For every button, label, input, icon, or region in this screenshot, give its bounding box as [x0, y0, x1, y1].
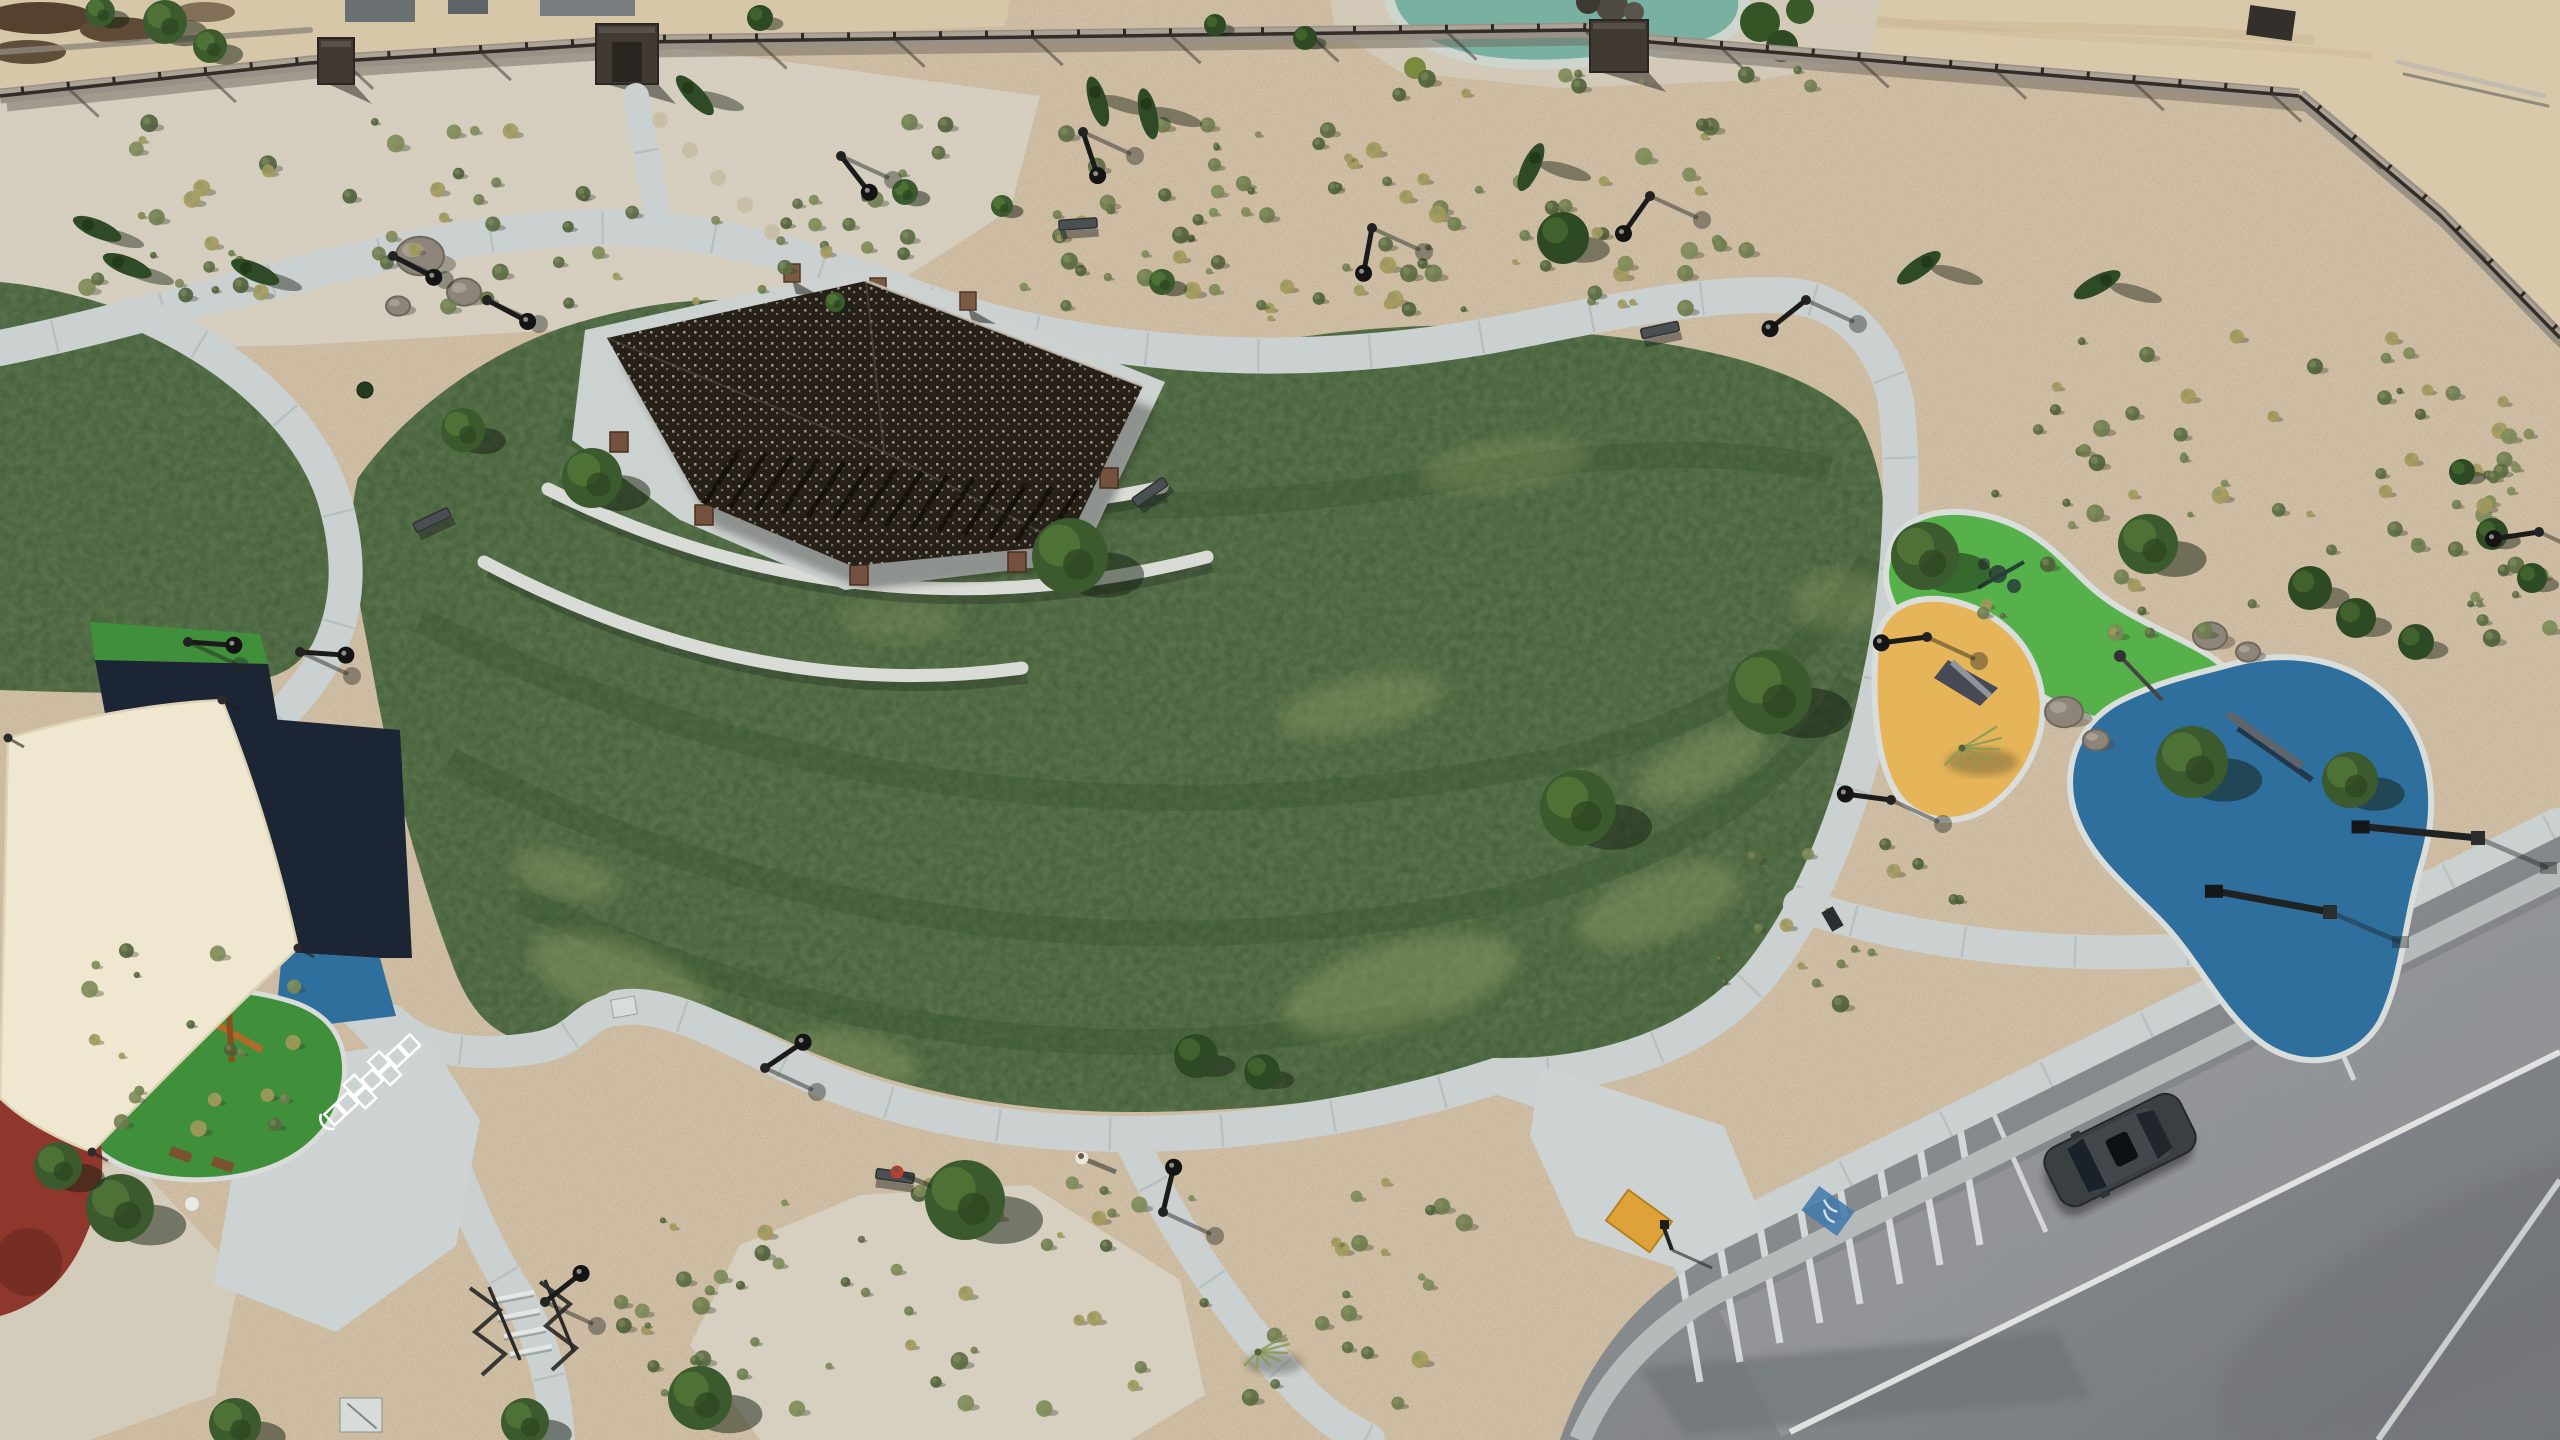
gate-gap	[612, 42, 642, 82]
shed-roof-3	[448, 0, 488, 14]
screenshot-root	[0, 0, 2560, 1440]
sail-pole	[218, 696, 227, 705]
white-bag	[185, 1197, 199, 1211]
stepping-stone-4	[737, 197, 753, 213]
stepping-stone-3	[710, 170, 726, 186]
utility-box-lawn	[611, 996, 638, 1018]
mail-kiosk	[2246, 5, 2296, 41]
stepping-stone-1	[652, 112, 668, 128]
sail-pole	[88, 1148, 97, 1157]
stepping-stone-2	[682, 142, 698, 158]
scene-root	[0, 0, 2560, 1440]
shed-roof-1	[345, 0, 415, 22]
park-bench	[1059, 218, 1099, 240]
sail-pole	[294, 944, 303, 953]
trash-can	[357, 382, 373, 398]
sail-pole	[4, 734, 13, 743]
aerial-park-photo	[0, 0, 2560, 1440]
shed-roof-2	[540, 0, 635, 16]
